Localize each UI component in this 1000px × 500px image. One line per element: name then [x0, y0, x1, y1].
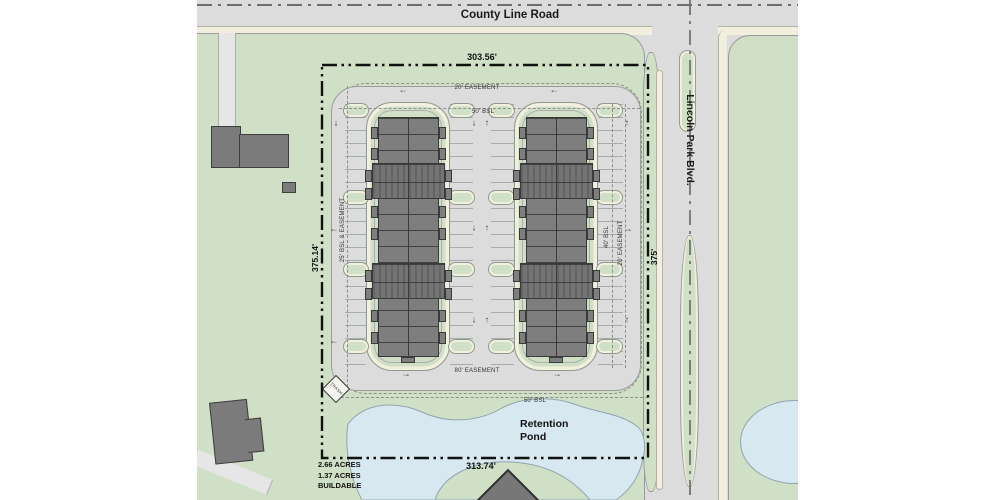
porch-bump: [439, 310, 446, 322]
porch-bump: [371, 310, 378, 322]
porch-bump: [519, 127, 526, 139]
roof-ridge-line: [408, 117, 409, 357]
porch-bump: [513, 270, 520, 282]
bsl-line-west: [347, 86, 348, 392]
porch-bump: [365, 170, 372, 182]
existing-building-north: [239, 134, 289, 168]
porch-bump: [587, 332, 594, 344]
flow-arrow-up-icon: ↑: [485, 316, 490, 325]
landscape-island-finger: [596, 339, 623, 354]
porch-bump: [445, 288, 452, 300]
lincoln-park-centerline: [689, 0, 691, 500]
site-plan-canvas: ←←→→↓↑↓↑↓↑↓←←↑→↑ TRASH County Line Road …: [0, 0, 1000, 500]
porch-bump: [365, 188, 372, 200]
flow-arrow-left-icon: ←: [550, 86, 559, 95]
entry-stoop: [401, 357, 415, 363]
site-plan-sheet: ←←→→↓↑↓↑↓↑↓←←↑→↑ TRASH County Line Road …: [197, 0, 798, 500]
porch-bump: [593, 270, 600, 282]
porch-bump: [587, 206, 594, 218]
flow-arrow-left-icon: ←: [330, 337, 339, 346]
county-line-road-label: County Line Road: [461, 9, 559, 21]
porch-bump: [371, 148, 378, 160]
porch-bump: [513, 188, 520, 200]
porch-bump: [593, 188, 600, 200]
flow-arrow-right-icon: →: [402, 370, 411, 379]
existing-building-south: [208, 389, 268, 470]
porch-bump: [371, 228, 378, 240]
porch-bump: [445, 170, 452, 182]
dimension-south: 313.74': [466, 461, 496, 471]
flow-arrow-down-icon: ↓: [472, 316, 477, 325]
porch-bump: [519, 228, 526, 240]
flow-arrow-down-icon: ↓: [334, 119, 339, 128]
dimension-west: 375.14': [310, 244, 320, 272]
porch-bump: [365, 288, 372, 300]
parking-stalls-center-west: [450, 104, 473, 368]
porch-bump: [439, 148, 446, 160]
porch-bump: [587, 127, 594, 139]
porch-bump: [519, 310, 526, 322]
landscape-island-finger: [596, 190, 623, 205]
easement-top-label: 20' EASEMENT: [455, 85, 500, 91]
parking-stalls-west: [345, 104, 366, 368]
porch-bump: [445, 188, 452, 200]
acreage-buildable-word: BUILDABLE: [318, 481, 361, 492]
lincoln-park-sidewalk-east: [718, 30, 727, 500]
east-bsl-label: 40' BSL: [604, 226, 610, 248]
acreage-note: 2.66 ACRES 1.37 ACRES BUILDABLE: [318, 460, 361, 492]
existing-building-north-wing: [211, 126, 241, 168]
roof-ridge-line: [556, 117, 557, 357]
flow-arrow-up-icon: ↑: [485, 119, 490, 128]
flow-arrow-down-icon: ↓: [472, 224, 477, 233]
landscape-island-finger: [488, 339, 515, 354]
west-setback-label: 25' BSL & EASEMENT: [340, 198, 346, 263]
entry-stoop: [549, 357, 563, 363]
porch-bump: [439, 206, 446, 218]
acreage-buildable: 1.37 ACRES: [318, 471, 361, 482]
porch-bump: [371, 206, 378, 218]
lincoln-park-blvd-label: Lincoln Park Blvd.: [684, 94, 696, 186]
bsl-bottom-label: 50' BSL: [524, 398, 546, 404]
porch-bump: [519, 206, 526, 218]
porch-bump: [365, 270, 372, 282]
porch-bump: [371, 127, 378, 139]
landscape-island-finger: [448, 339, 475, 354]
dimension-north: 303.56': [467, 52, 497, 62]
porch-bump: [593, 288, 600, 300]
county-line-sidewalk-east: [718, 26, 798, 35]
east-easement-label: 20' EASEMENT: [618, 221, 624, 266]
flow-arrow-up-icon: ↑: [485, 224, 490, 233]
existing-building-south-wing: [245, 418, 264, 453]
acreage-total: 2.66 ACRES: [318, 460, 361, 471]
porch-bump: [593, 170, 600, 182]
porch-bump: [513, 170, 520, 182]
flow-arrow-left-icon: ←: [330, 225, 339, 234]
lincoln-park-sidewalk-west: [656, 70, 663, 490]
porch-bump: [439, 228, 446, 240]
porch-bump: [371, 332, 378, 344]
porch-bump: [445, 270, 452, 282]
flow-arrow-left-icon: ←: [399, 86, 408, 95]
bsl-line-east: [612, 104, 613, 368]
existing-driveway-north: [218, 33, 236, 128]
easement-line-east: [625, 104, 626, 368]
porch-bump: [587, 148, 594, 160]
flow-arrow-right-icon: →: [553, 370, 562, 379]
porch-bump: [513, 288, 520, 300]
flow-arrow-down-icon: ↓: [472, 119, 477, 128]
landscape-island-finger: [448, 190, 475, 205]
easement-bottom-label: 80' EASEMENT: [455, 368, 500, 374]
existing-shed: [282, 182, 296, 193]
porch-bump: [519, 148, 526, 160]
landscape-island-finger: [488, 262, 515, 277]
porch-bump: [587, 310, 594, 322]
porch-bump: [439, 127, 446, 139]
landscape-island-finger: [596, 103, 623, 118]
porch-bump: [587, 228, 594, 240]
county-line-road-centerline: [197, 4, 798, 6]
porch-bump: [439, 332, 446, 344]
parking-stalls-center-east: [491, 104, 514, 368]
porch-bump: [519, 332, 526, 344]
landscape-island-finger: [448, 262, 475, 277]
dimension-east: 375': [649, 249, 659, 265]
bsl-top-label: 50' BSL: [472, 109, 494, 115]
landscape-island-finger: [488, 190, 515, 205]
